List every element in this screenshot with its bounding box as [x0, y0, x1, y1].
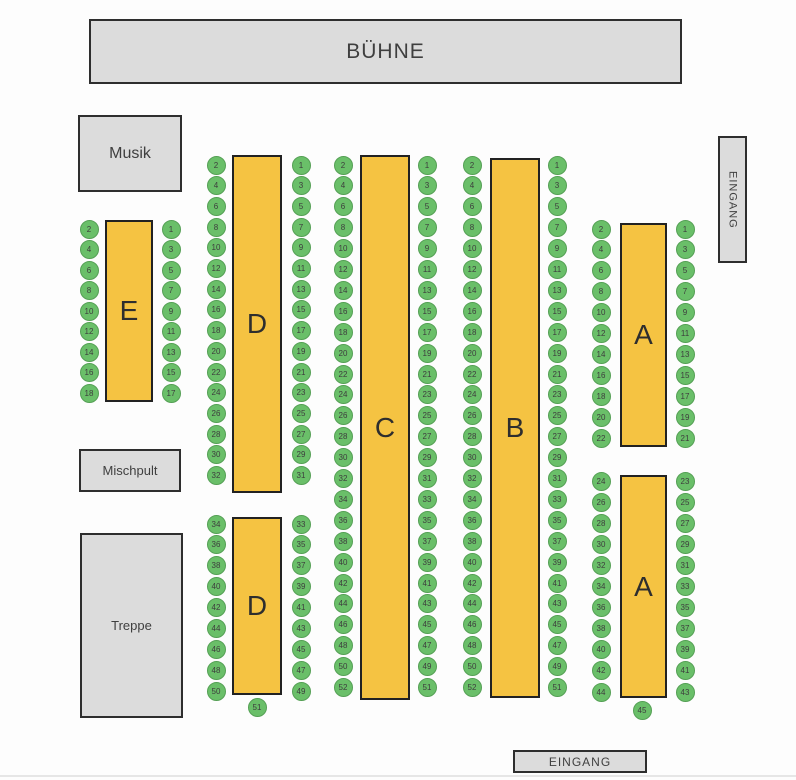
seat-C-31[interactable]: 31 — [418, 469, 437, 488]
seat-E-12[interactable]: 12 — [80, 322, 99, 341]
seat-A2-31[interactable]: 31 — [676, 556, 695, 575]
seat-A1-12[interactable]: 12 — [592, 324, 611, 343]
seat-C-49[interactable]: 49 — [418, 657, 437, 676]
seat-B-23[interactable]: 23 — [548, 385, 567, 404]
seat-D1-10[interactable]: 10 — [207, 238, 226, 257]
seat-D1-31[interactable]: 31 — [292, 466, 311, 485]
seat-B-50[interactable]: 50 — [463, 657, 482, 676]
seat-A2-41[interactable]: 41 — [676, 661, 695, 680]
seat-B-31[interactable]: 31 — [548, 469, 567, 488]
seat-B-3[interactable]: 3 — [548, 176, 567, 195]
seat-D1-7[interactable]: 7 — [292, 218, 311, 237]
seat-D1-26[interactable]: 26 — [207, 404, 226, 423]
seat-B-29[interactable]: 29 — [548, 448, 567, 467]
seat-C-40[interactable]: 40 — [334, 553, 353, 572]
seat-E-10[interactable]: 10 — [80, 302, 99, 321]
seat-C-24[interactable]: 24 — [334, 385, 353, 404]
seat-C-46[interactable]: 46 — [334, 615, 353, 634]
seat-B-9[interactable]: 9 — [548, 239, 567, 258]
seat-D1-27[interactable]: 27 — [292, 425, 311, 444]
seat-B-18[interactable]: 18 — [463, 323, 482, 342]
seat-D1-6[interactable]: 6 — [207, 197, 226, 216]
seat-E-17[interactable]: 17 — [162, 384, 181, 403]
seat-E-4[interactable]: 4 — [80, 240, 99, 259]
seat-D2-37[interactable]: 37 — [292, 556, 311, 575]
table-E: E — [105, 220, 153, 402]
seat-A1-15[interactable]: 15 — [676, 366, 695, 385]
seat-C-38[interactable]: 38 — [334, 532, 353, 551]
seat-B-43[interactable]: 43 — [548, 594, 567, 613]
bottom-divider — [0, 775, 796, 777]
seat-B-46[interactable]: 46 — [463, 615, 482, 634]
seat-A1-1[interactable]: 1 — [676, 220, 695, 239]
seat-D2-34[interactable]: 34 — [207, 515, 226, 534]
seat-B-41[interactable]: 41 — [548, 574, 567, 593]
seat-D1-9[interactable]: 9 — [292, 238, 311, 257]
seat-E-8[interactable]: 8 — [80, 281, 99, 300]
seat-B-6[interactable]: 6 — [463, 197, 482, 216]
seat-B-28[interactable]: 28 — [463, 427, 482, 446]
seat-B-51[interactable]: 51 — [548, 678, 567, 697]
seat-A1-19[interactable]: 19 — [676, 408, 695, 427]
seat-A2-39[interactable]: 39 — [676, 640, 695, 659]
seat-A1-3[interactable]: 3 — [676, 240, 695, 259]
seat-B-44[interactable]: 44 — [463, 594, 482, 613]
seat-B-15[interactable]: 15 — [548, 302, 567, 321]
seat-C-21[interactable]: 21 — [418, 365, 437, 384]
seat-C-9[interactable]: 9 — [418, 239, 437, 258]
seat-D1-23[interactable]: 23 — [292, 383, 311, 402]
seat-A1-10[interactable]: 10 — [592, 303, 611, 322]
seat-A1-6[interactable]: 6 — [592, 261, 611, 280]
seat-C-50[interactable]: 50 — [334, 657, 353, 676]
seat-A1-20[interactable]: 20 — [592, 408, 611, 427]
seat-E-6[interactable]: 6 — [80, 261, 99, 280]
seat-C-37[interactable]: 37 — [418, 532, 437, 551]
seat-B-39[interactable]: 39 — [548, 553, 567, 572]
seat-B-42[interactable]: 42 — [463, 574, 482, 593]
seat-D2-43[interactable]: 43 — [292, 619, 311, 638]
seat-B-5[interactable]: 5 — [548, 197, 567, 216]
seat-A2-36[interactable]: 36 — [592, 598, 611, 617]
seat-A1-4[interactable]: 4 — [592, 240, 611, 259]
seat-D1-4[interactable]: 4 — [207, 176, 226, 195]
seat-B-12[interactable]: 12 — [463, 260, 482, 279]
seat-B-49[interactable]: 49 — [548, 657, 567, 676]
seat-D2-38[interactable]: 38 — [207, 556, 226, 575]
seat-E-16[interactable]: 16 — [80, 363, 99, 382]
seat-D2-41[interactable]: 41 — [292, 598, 311, 617]
seat-C-11[interactable]: 11 — [418, 260, 437, 279]
seat-D1-22[interactable]: 22 — [207, 363, 226, 382]
seat-D1-20[interactable]: 20 — [207, 342, 226, 361]
seat-A2-32[interactable]: 32 — [592, 556, 611, 575]
seat-D1-25[interactable]: 25 — [292, 404, 311, 423]
seat-A1-14[interactable]: 14 — [592, 345, 611, 364]
seat-C-47[interactable]: 47 — [418, 636, 437, 655]
seat-C-6[interactable]: 6 — [334, 197, 353, 216]
seat-A2-37[interactable]: 37 — [676, 619, 695, 638]
seat-D2-46[interactable]: 46 — [207, 640, 226, 659]
seat-C-25[interactable]: 25 — [418, 406, 437, 425]
seat-A1-21[interactable]: 21 — [676, 429, 695, 448]
seat-C-27[interactable]: 27 — [418, 427, 437, 446]
seat-B-38[interactable]: 38 — [463, 532, 482, 551]
seat-D2-36[interactable]: 36 — [207, 535, 226, 554]
seat-E-9[interactable]: 9 — [162, 302, 181, 321]
seat-A2-43[interactable]: 43 — [676, 683, 695, 702]
seat-C-51[interactable]: 51 — [418, 678, 437, 697]
seat-D1-13[interactable]: 13 — [292, 280, 311, 299]
seat-A2-42[interactable]: 42 — [592, 661, 611, 680]
seat-B-24[interactable]: 24 — [463, 385, 482, 404]
seat-D2-33[interactable]: 33 — [292, 515, 311, 534]
table-D1: D — [232, 155, 282, 493]
seat-B-2[interactable]: 2 — [463, 156, 482, 175]
seat-D2-42[interactable]: 42 — [207, 598, 226, 617]
table-label: E — [120, 295, 139, 327]
seat-C-17[interactable]: 17 — [418, 323, 437, 342]
seat-C-41[interactable]: 41 — [418, 574, 437, 593]
seat-B-13[interactable]: 13 — [548, 281, 567, 300]
seat-B-20[interactable]: 20 — [463, 344, 482, 363]
seat-D1-30[interactable]: 30 — [207, 445, 226, 464]
seat-D2-47[interactable]: 47 — [292, 661, 311, 680]
seat-A1-22[interactable]: 22 — [592, 429, 611, 448]
seat-E-11[interactable]: 11 — [162, 322, 181, 341]
seat-A2-38[interactable]: 38 — [592, 619, 611, 638]
seat-C-14[interactable]: 14 — [334, 281, 353, 300]
seat-D1-15[interactable]: 15 — [292, 300, 311, 319]
table-B: B — [490, 158, 540, 698]
seat-A2-33[interactable]: 33 — [676, 577, 695, 596]
seat-E-5[interactable]: 5 — [162, 261, 181, 280]
seat-C-23[interactable]: 23 — [418, 385, 437, 404]
seat-C-32[interactable]: 32 — [334, 469, 353, 488]
table-label: C — [375, 412, 395, 444]
table-label: A — [634, 319, 653, 351]
seat-E-1[interactable]: 1 — [162, 220, 181, 239]
seat-C-34[interactable]: 34 — [334, 490, 353, 509]
seat-C-16[interactable]: 16 — [334, 302, 353, 321]
seat-C-44[interactable]: 44 — [334, 594, 353, 613]
seat-D1-14[interactable]: 14 — [207, 280, 226, 299]
seat-D1-21[interactable]: 21 — [292, 363, 311, 382]
seat-B-17[interactable]: 17 — [548, 323, 567, 342]
seat-B-11[interactable]: 11 — [548, 260, 567, 279]
seat-C-33[interactable]: 33 — [418, 490, 437, 509]
seat-A2-29[interactable]: 29 — [676, 535, 695, 554]
seat-B-26[interactable]: 26 — [463, 406, 482, 425]
seat-D2-49[interactable]: 49 — [292, 682, 311, 701]
seat-C-20[interactable]: 20 — [334, 344, 353, 363]
seat-B-27[interactable]: 27 — [548, 427, 567, 446]
seat-A2-35[interactable]: 35 — [676, 598, 695, 617]
seat-B-14[interactable]: 14 — [463, 281, 482, 300]
seat-B-4[interactable]: 4 — [463, 176, 482, 195]
seat-B-10[interactable]: 10 — [463, 239, 482, 258]
table-label: B — [506, 412, 525, 444]
seat-B-30[interactable]: 30 — [463, 448, 482, 467]
seat-A2-26[interactable]: 26 — [592, 493, 611, 512]
seat-B-1[interactable]: 1 — [548, 156, 567, 175]
seat-B-36[interactable]: 36 — [463, 511, 482, 530]
seat-C-43[interactable]: 43 — [418, 594, 437, 613]
seat-map: E246810121416181357911131517D24681012141… — [0, 0, 796, 780]
seat-B-33[interactable]: 33 — [548, 490, 567, 509]
seat-A1-9[interactable]: 9 — [676, 303, 695, 322]
seat-E-2[interactable]: 2 — [80, 220, 99, 239]
seat-A2-23[interactable]: 23 — [676, 472, 695, 491]
seat-C-12[interactable]: 12 — [334, 260, 353, 279]
seating-plan: BÜHNE Musik Mischpult Treppe EINGANG EIN… — [0, 0, 796, 780]
seat-D1-1[interactable]: 1 — [292, 156, 311, 175]
table-C: C — [360, 155, 410, 700]
seat-C-52[interactable]: 52 — [334, 678, 353, 697]
table-D2: D — [232, 517, 282, 695]
seat-A2-27[interactable]: 27 — [676, 514, 695, 533]
seat-C-15[interactable]: 15 — [418, 302, 437, 321]
seat-A2-34[interactable]: 34 — [592, 577, 611, 596]
seat-A2-45[interactable]: 45 — [633, 701, 652, 720]
seat-D1-18[interactable]: 18 — [207, 321, 226, 340]
seat-A1-13[interactable]: 13 — [676, 345, 695, 364]
seat-D2-39[interactable]: 39 — [292, 577, 311, 596]
seat-E-15[interactable]: 15 — [162, 363, 181, 382]
seat-B-25[interactable]: 25 — [548, 406, 567, 425]
seat-D2-48[interactable]: 48 — [207, 661, 226, 680]
seat-C-35[interactable]: 35 — [418, 511, 437, 530]
seat-A2-25[interactable]: 25 — [676, 493, 695, 512]
seat-B-8[interactable]: 8 — [463, 218, 482, 237]
seat-B-35[interactable]: 35 — [548, 511, 567, 530]
seat-C-1[interactable]: 1 — [418, 156, 437, 175]
seat-D1-17[interactable]: 17 — [292, 321, 311, 340]
seat-E-14[interactable]: 14 — [80, 343, 99, 362]
seat-C-7[interactable]: 7 — [418, 218, 437, 237]
seat-C-5[interactable]: 5 — [418, 197, 437, 216]
seat-A2-40[interactable]: 40 — [592, 640, 611, 659]
table-label: A — [634, 571, 653, 603]
seat-E-13[interactable]: 13 — [162, 343, 181, 362]
seat-B-22[interactable]: 22 — [463, 365, 482, 384]
seat-D1-32[interactable]: 32 — [207, 466, 226, 485]
seat-A1-8[interactable]: 8 — [592, 282, 611, 301]
seat-A2-24[interactable]: 24 — [592, 472, 611, 491]
seat-B-21[interactable]: 21 — [548, 365, 567, 384]
seat-B-40[interactable]: 40 — [463, 553, 482, 572]
seat-C-18[interactable]: 18 — [334, 323, 353, 342]
seat-B-16[interactable]: 16 — [463, 302, 482, 321]
seat-D1-5[interactable]: 5 — [292, 197, 311, 216]
seat-C-48[interactable]: 48 — [334, 636, 353, 655]
seat-D2-44[interactable]: 44 — [207, 619, 226, 638]
seat-A1-5[interactable]: 5 — [676, 261, 695, 280]
seat-D1-3[interactable]: 3 — [292, 176, 311, 195]
seat-D1-12[interactable]: 12 — [207, 259, 226, 278]
table-A1: A — [620, 223, 667, 447]
seat-C-45[interactable]: 45 — [418, 615, 437, 634]
table-A2: A — [620, 475, 667, 698]
seat-B-45[interactable]: 45 — [548, 615, 567, 634]
seat-D1-8[interactable]: 8 — [207, 218, 226, 237]
seat-B-47[interactable]: 47 — [548, 636, 567, 655]
seat-D1-29[interactable]: 29 — [292, 445, 311, 464]
seat-E-18[interactable]: 18 — [80, 384, 99, 403]
seat-C-8[interactable]: 8 — [334, 218, 353, 237]
seat-C-36[interactable]: 36 — [334, 511, 353, 530]
seat-D2-40[interactable]: 40 — [207, 577, 226, 596]
seat-D2-50[interactable]: 50 — [207, 682, 226, 701]
seat-C-28[interactable]: 28 — [334, 427, 353, 446]
seat-C-3[interactable]: 3 — [418, 176, 437, 195]
seat-A1-17[interactable]: 17 — [676, 387, 695, 406]
seat-E-7[interactable]: 7 — [162, 281, 181, 300]
seat-A1-16[interactable]: 16 — [592, 366, 611, 385]
seat-D2-35[interactable]: 35 — [292, 535, 311, 554]
seat-D1-19[interactable]: 19 — [292, 342, 311, 361]
seat-C-42[interactable]: 42 — [334, 574, 353, 593]
seat-C-26[interactable]: 26 — [334, 406, 353, 425]
seat-C-2[interactable]: 2 — [334, 156, 353, 175]
seat-C-30[interactable]: 30 — [334, 448, 353, 467]
seat-A1-2[interactable]: 2 — [592, 220, 611, 239]
table-label: D — [247, 590, 267, 622]
seat-E-3[interactable]: 3 — [162, 240, 181, 259]
seat-D2-51[interactable]: 51 — [248, 698, 267, 717]
seat-B-48[interactable]: 48 — [463, 636, 482, 655]
seat-B-34[interactable]: 34 — [463, 490, 482, 509]
seat-D1-2[interactable]: 2 — [207, 156, 226, 175]
seat-D2-45[interactable]: 45 — [292, 640, 311, 659]
table-label: D — [247, 308, 267, 340]
seat-D1-16[interactable]: 16 — [207, 300, 226, 319]
seat-C-13[interactable]: 13 — [418, 281, 437, 300]
seat-D1-28[interactable]: 28 — [207, 425, 226, 444]
seat-B-32[interactable]: 32 — [463, 469, 482, 488]
seat-B-19[interactable]: 19 — [548, 344, 567, 363]
seat-B-52[interactable]: 52 — [463, 678, 482, 697]
seat-A1-11[interactable]: 11 — [676, 324, 695, 343]
seat-C-39[interactable]: 39 — [418, 553, 437, 572]
seat-B-7[interactable]: 7 — [548, 218, 567, 237]
seat-C-4[interactable]: 4 — [334, 176, 353, 195]
seat-A2-28[interactable]: 28 — [592, 514, 611, 533]
seat-C-19[interactable]: 19 — [418, 344, 437, 363]
seat-B-37[interactable]: 37 — [548, 532, 567, 551]
seat-C-29[interactable]: 29 — [418, 448, 437, 467]
seat-A1-7[interactable]: 7 — [676, 282, 695, 301]
seat-C-10[interactable]: 10 — [334, 239, 353, 258]
seat-A2-44[interactable]: 44 — [592, 683, 611, 702]
seat-D1-11[interactable]: 11 — [292, 259, 311, 278]
seat-A1-18[interactable]: 18 — [592, 387, 611, 406]
seat-A2-30[interactable]: 30 — [592, 535, 611, 554]
seat-C-22[interactable]: 22 — [334, 365, 353, 384]
seat-D1-24[interactable]: 24 — [207, 383, 226, 402]
